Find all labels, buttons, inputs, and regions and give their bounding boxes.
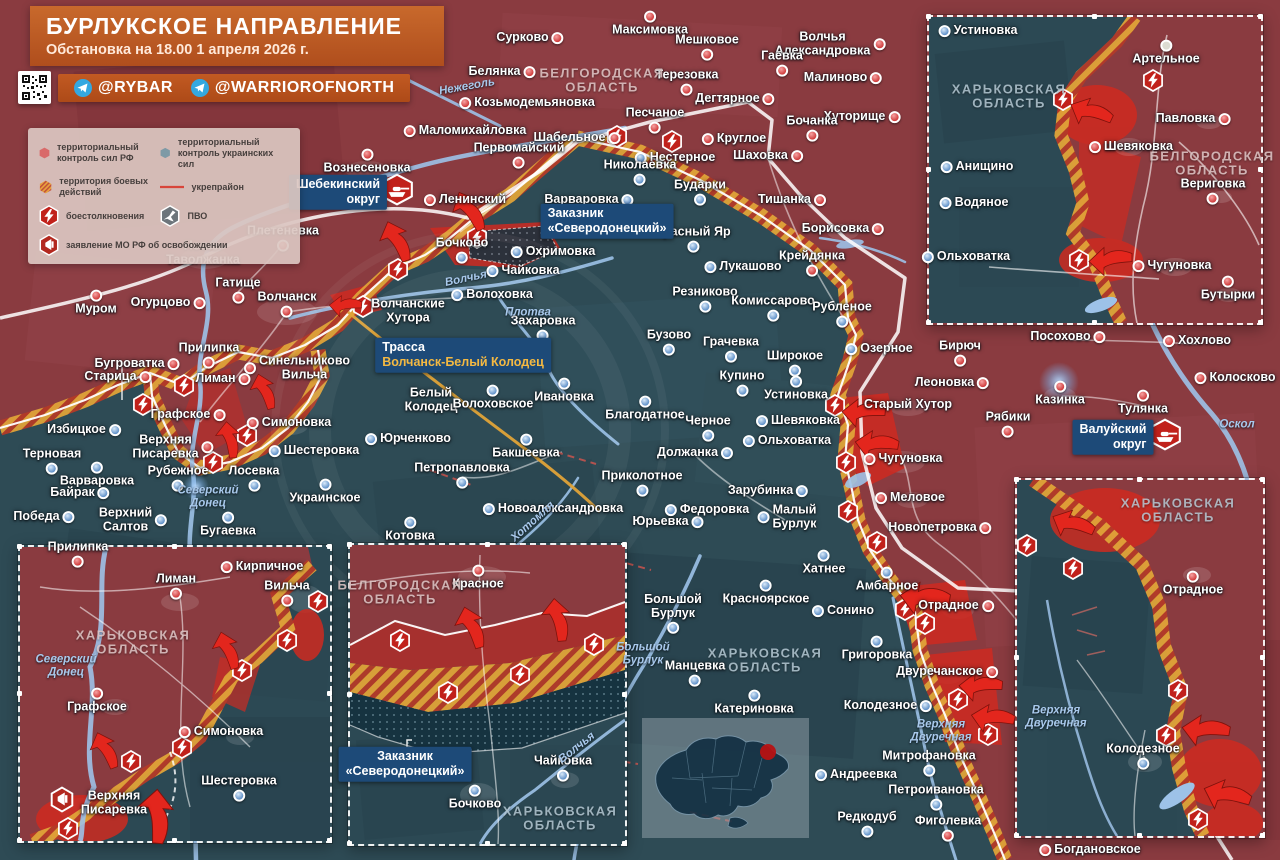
- map-title: БУРЛУКСКОЕ НАПРАВЛЕНИЕ: [46, 13, 426, 40]
- legend-item-mod-statement: заявление МО РФ об освобождении: [38, 234, 290, 256]
- inset-map-zakaznik: [348, 543, 627, 846]
- title-banner: БУРЛУКСКОЕ НАПРАВЛЕНИЕ Обстановка на 18.…: [30, 6, 444, 66]
- combat-zone-icon: [38, 177, 53, 197]
- qr-pattern: [21, 74, 48, 101]
- inset-corner-dot: [622, 542, 627, 547]
- inset-corner-dot: [172, 544, 177, 549]
- legend-item-combat-zone: территория боевых действий: [38, 176, 151, 198]
- fortification-line-icon: [159, 182, 185, 192]
- inset-corner-dot: [327, 838, 332, 843]
- inset-corner-dot: [17, 691, 22, 696]
- inset-corner-dot: [1014, 833, 1019, 838]
- inset-corner-dot: [327, 691, 332, 696]
- inset-corner-dot: [1258, 167, 1263, 172]
- inset-corner-dot: [1092, 320, 1097, 325]
- inset-corner-dot: [622, 841, 627, 846]
- legend-item-ua-control: территориальный контроль украинских сил: [159, 137, 290, 169]
- pvo-icon: [159, 205, 181, 227]
- telegram-channel-warriorofnorth[interactable]: @WARRIOROFNORTH: [191, 79, 395, 97]
- legend-item-rf-control: территориальный контроль сил РФ: [38, 137, 151, 169]
- inset-corner-dot: [1260, 833, 1265, 838]
- inset-corner-dot: [485, 841, 490, 846]
- inset-corner-dot: [926, 167, 931, 172]
- inset-corner-dot: [347, 542, 352, 547]
- inset-corner-dot: [485, 542, 490, 547]
- inset-corner-dot: [1092, 14, 1097, 19]
- inset-corner-dot: [347, 841, 352, 846]
- telegram-banner: @RYBAR @WARRIOROFNORTH: [58, 74, 410, 102]
- inset-corner-dot: [17, 838, 22, 843]
- inset-corner-dot: [1137, 477, 1142, 482]
- inset-corner-dot: [1260, 477, 1265, 482]
- inset-map-northeast: [927, 15, 1263, 325]
- telegram-icon: [74, 79, 92, 97]
- inset-corner-dot: [1137, 833, 1142, 838]
- clash-icon: [38, 205, 60, 227]
- channel-handle: @RYBAR: [98, 79, 173, 97]
- inset-corner-dot: [1014, 477, 1019, 482]
- legend-item-pvo: ПВО: [159, 205, 290, 227]
- inset-corner-dot: [327, 544, 332, 549]
- rf-territory-icon: [38, 143, 51, 163]
- inset-corner-dot: [926, 320, 931, 325]
- situation-map: МаксимовкаСурковоМешковоеВолчья Александ…: [0, 0, 1280, 860]
- telegram-icon: [191, 79, 209, 97]
- channel-handle: @WARRIOROFNORTH: [215, 79, 395, 97]
- map-legend: территориальный контроль сил РФ территор…: [28, 128, 300, 264]
- megaphone-icon: [38, 234, 60, 256]
- inset-corner-dot: [17, 544, 22, 549]
- ua-territory-icon: [159, 143, 171, 163]
- telegram-channel-rybar[interactable]: @RYBAR: [74, 79, 173, 97]
- inset-map-southwest: [18, 545, 332, 843]
- inset-corner-dot: [1260, 655, 1265, 660]
- inset-corner-dot: [1258, 320, 1263, 325]
- ukraine-locator-minimap: [642, 718, 809, 838]
- map-subtitle: Обстановка на 18.00 1 апреля 2026 г.: [46, 42, 426, 58]
- inset-corner-dot: [926, 14, 931, 19]
- inset-map-southeast: [1015, 478, 1265, 838]
- legend-item-fortification: укрепрайон: [159, 176, 290, 198]
- inset-corner-dot: [1258, 14, 1263, 19]
- inset-corner-dot: [172, 838, 177, 843]
- inset-corner-dot: [622, 692, 627, 697]
- inset-corner-dot: [1014, 655, 1019, 660]
- qr-code[interactable]: [18, 71, 51, 104]
- legend-item-clashes: боестолкновения: [38, 205, 151, 227]
- inset-corner-dot: [347, 692, 352, 697]
